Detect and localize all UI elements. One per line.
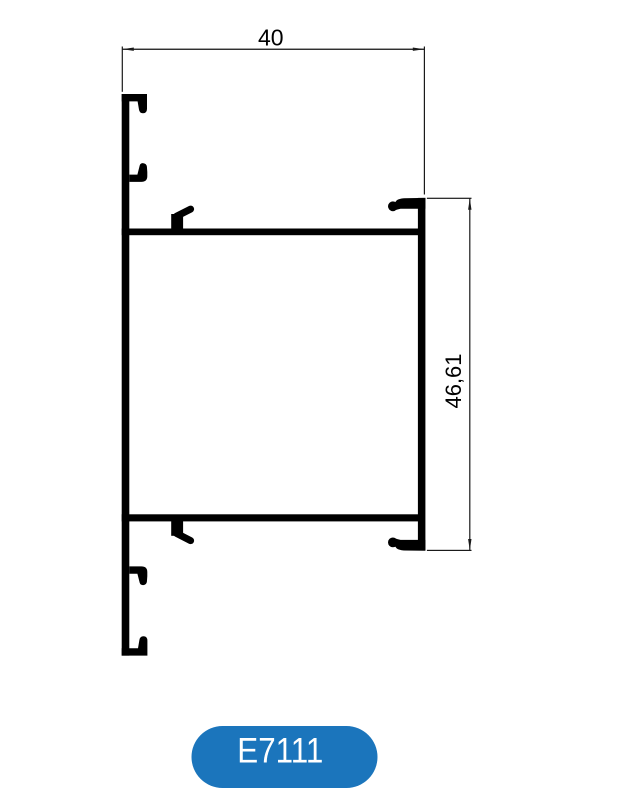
svg-text:E7111: E7111 xyxy=(237,732,323,771)
svg-text:46,61: 46,61 xyxy=(441,353,466,408)
svg-text:40: 40 xyxy=(258,25,284,51)
